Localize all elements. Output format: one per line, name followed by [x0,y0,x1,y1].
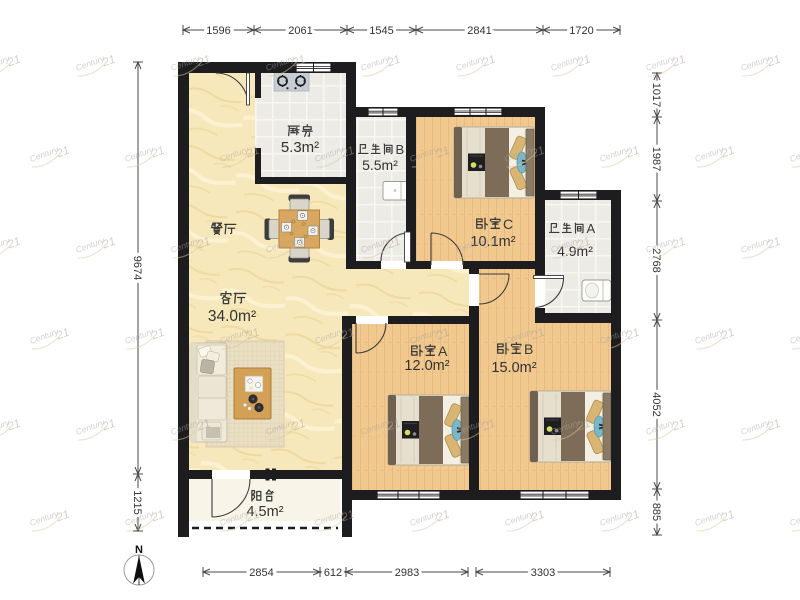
svg-text:1545: 1545 [369,25,393,37]
svg-text:612: 612 [324,567,342,579]
svg-text:1987: 1987 [650,147,662,171]
svg-text:1596: 1596 [206,25,230,37]
svg-text:C: C [503,216,513,232]
svg-text:2854: 2854 [249,567,273,579]
svg-text:2061: 2061 [288,25,312,37]
svg-text:1017: 1017 [650,83,662,107]
svg-text:1720: 1720 [569,25,593,37]
svg-text:9674: 9674 [131,256,143,280]
svg-text:885: 885 [650,503,662,521]
svg-text:A: A [587,221,596,236]
svg-text:A: A [438,343,448,359]
svg-text:B: B [396,142,405,157]
svg-text:N: N [135,544,143,556]
svg-text:15.0m²: 15.0m² [491,360,536,376]
svg-text:3303: 3303 [531,567,555,579]
svg-text:4052: 4052 [650,392,662,416]
svg-text:34.0m²: 34.0m² [208,308,256,325]
svg-text:12.0m²: 12.0m² [404,358,449,374]
svg-text:2983: 2983 [395,567,419,579]
svg-text:2841: 2841 [467,25,491,37]
svg-text:5.5m²: 5.5m² [362,157,398,173]
